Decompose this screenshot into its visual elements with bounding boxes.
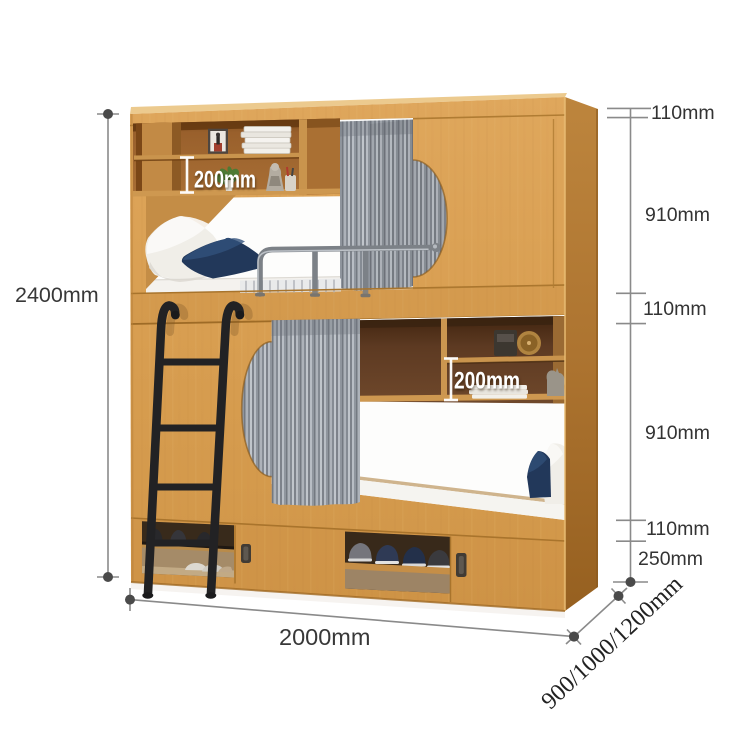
svg-text:2000mm: 2000mm — [279, 624, 370, 650]
svg-text:2400mm: 2400mm — [15, 283, 99, 307]
svg-text:910mm: 910mm — [645, 422, 710, 444]
svg-text:110mm: 110mm — [643, 298, 707, 320]
svg-text:200mm: 200mm — [454, 368, 520, 395]
svg-text:110mm: 110mm — [646, 518, 710, 540]
svg-text:250mm: 250mm — [638, 548, 703, 570]
svg-text:910mm: 910mm — [645, 204, 710, 226]
svg-text:110mm: 110mm — [651, 102, 715, 124]
svg-text:200mm: 200mm — [194, 167, 256, 194]
